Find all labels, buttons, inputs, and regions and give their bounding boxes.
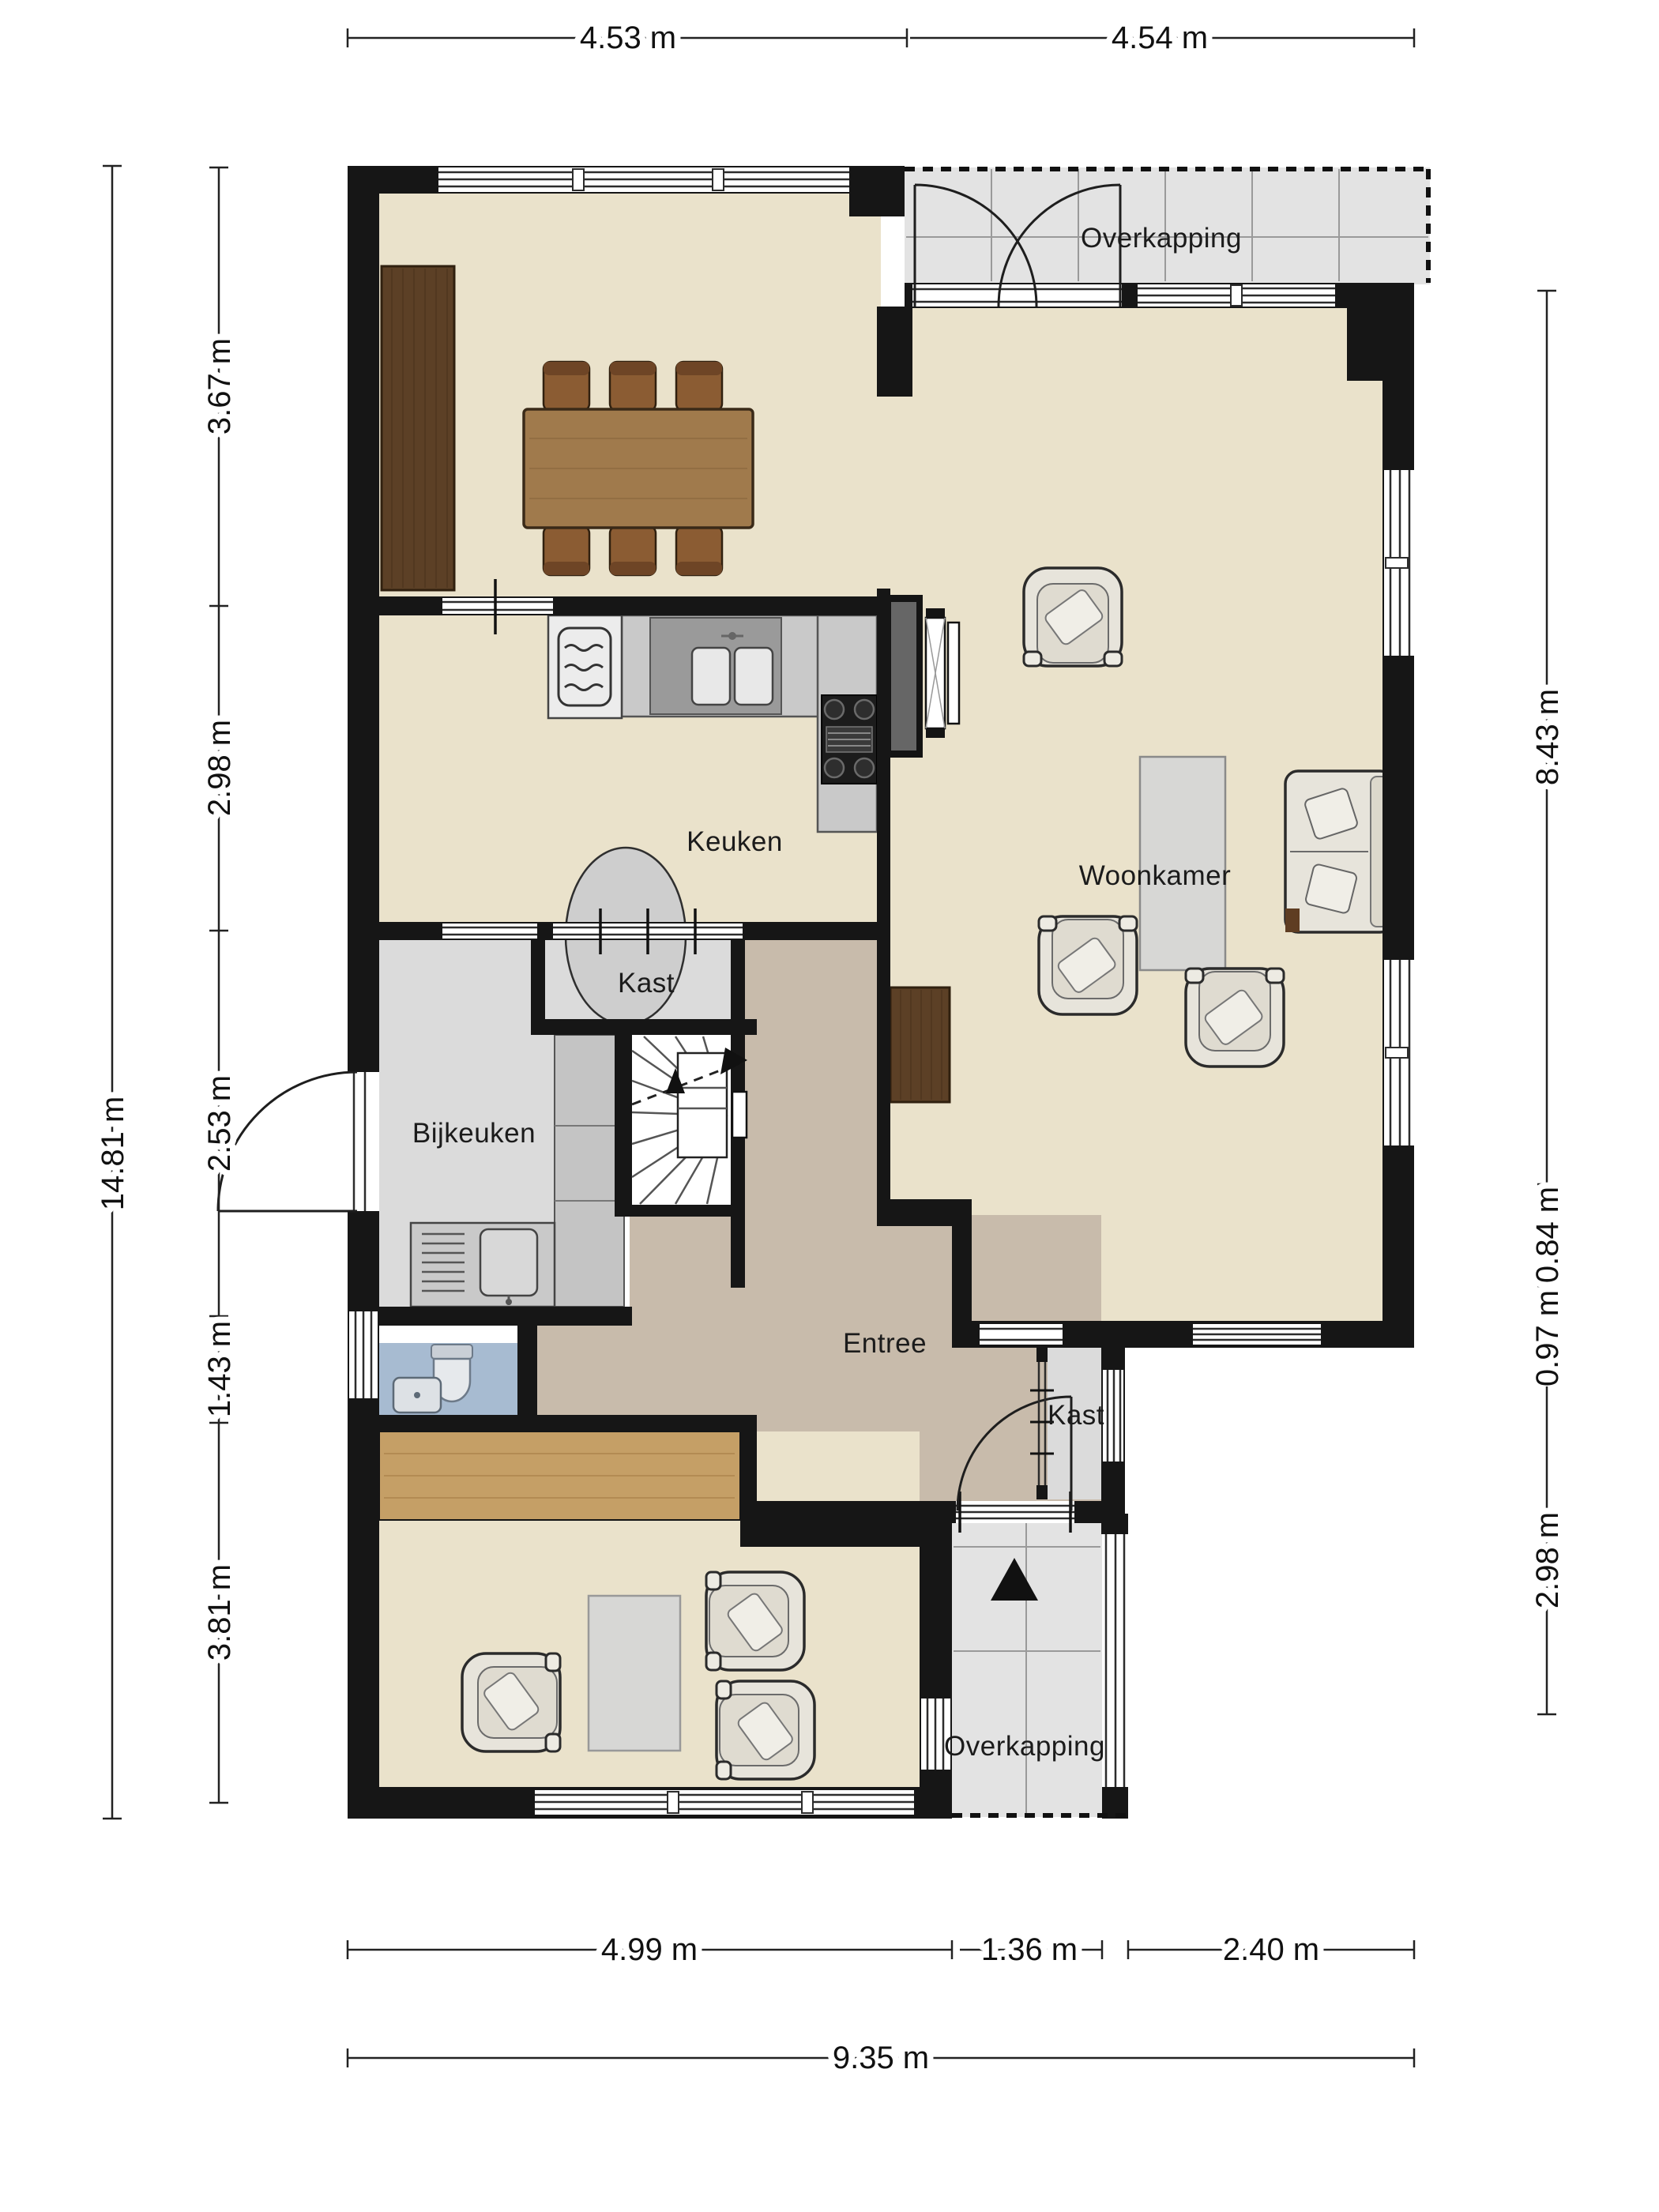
floor-plan: 4.53 m 4.54 m 14.81 m 3.67 m 2.98 m 2.53… (0, 0, 1659, 2212)
window-living-right-2 (1384, 960, 1431, 1145)
armchair-living-3 (1186, 969, 1284, 1066)
sitting-table (589, 1596, 680, 1751)
armchair-living-1 (1024, 568, 1122, 666)
window-entree-right (1103, 1370, 1123, 1461)
window-sitting-bottom (535, 1790, 914, 1815)
window-living-right-1 (1384, 470, 1431, 656)
armchair-sitting-2 (706, 1572, 804, 1670)
label-entree: Entree (843, 1328, 927, 1359)
dim-label: 1.43 m (202, 1321, 237, 1417)
dim-label: 3.81 m (202, 1564, 237, 1661)
dim-label: 14.81 m (96, 1097, 130, 1211)
window-living-bottom-2 (1193, 1324, 1321, 1345)
sofa (1285, 771, 1393, 932)
dim-bottom-segments: 4.99 m 1.36 m 2.40 m (348, 1932, 1414, 1967)
label-kast-entree: Kast (1048, 1400, 1104, 1431)
dim-label: 2.98 m (1530, 1512, 1565, 1608)
armchair-sitting-1 (462, 1653, 560, 1751)
label-keuken: Keuken (687, 826, 783, 857)
side-door (218, 1072, 379, 1211)
dim-label: 1.36 m (981, 1932, 1078, 1967)
stove (822, 695, 877, 784)
dim-label: 2.98 m (202, 720, 237, 816)
label-bijkeuken: Bijkeuken (412, 1118, 536, 1149)
dim-label: 8.43 m (1530, 689, 1565, 785)
dim-label: 3.67 m (202, 338, 237, 434)
dim-right-segments: 8.43 m 0.84 m 0.97 m 2.98 m (1530, 291, 1565, 1714)
armchair-sitting-3 (717, 1681, 814, 1779)
dim-left-total: 14.81 m (96, 166, 130, 1819)
sitting-sideboard (379, 1431, 740, 1520)
toilet-cistern (431, 1345, 472, 1359)
overkapping-glass-side (1102, 1534, 1128, 1787)
window-living-bottom-1 (980, 1324, 1063, 1345)
sofa-foot (1285, 908, 1300, 932)
toilet-niche (379, 1326, 517, 1345)
dim-bottom-total: 9.35 m (348, 2041, 1414, 2075)
stairs-rail-opening (732, 1092, 747, 1138)
label-overkapping-top: Overkapping (1081, 223, 1242, 254)
sink-left (692, 648, 730, 705)
dim-label: 2.53 m (202, 1075, 237, 1172)
dining-table-group (524, 362, 753, 575)
window-dining-top (438, 167, 849, 192)
window-left-toilet (349, 1311, 378, 1398)
dim-label: 9.35 m (833, 2041, 929, 2075)
armchair-living-2 (1039, 916, 1137, 1014)
sink-right (735, 648, 773, 705)
dim-label: 4.99 m (601, 1932, 698, 1967)
label-overkapping-bottom: Overkapping (944, 1731, 1105, 1762)
sideboard (382, 266, 454, 590)
dim-left-segments: 3.67 m 2.98 m 2.53 m 1.43 m 3.81 m (202, 167, 237, 1803)
label-woonkamer: Woonkamer (1079, 860, 1232, 891)
hall-corridor-floor (745, 940, 877, 1224)
hall-cabinet (890, 987, 950, 1102)
floor-plan-page: 4.53 m 4.54 m 14.81 m 3.67 m 2.98 m 2.53… (0, 0, 1659, 2212)
dim-label: 4.54 m (1112, 21, 1208, 55)
window-living-top (1138, 284, 1335, 307)
dim-label: 0.84 m (1530, 1187, 1565, 1283)
label-kast-top: Kast (618, 968, 675, 999)
bijkeuken-cupboard (555, 1035, 624, 1307)
laundry-sink (480, 1229, 537, 1296)
dim-label: 0.97 m (1530, 1290, 1565, 1386)
dim-label: 4.53 m (580, 21, 676, 55)
dim-top: 4.53 m 4.54 m (348, 21, 1414, 55)
laundry-counter (411, 1223, 555, 1307)
window-kast-wall (442, 924, 537, 939)
dim-label: 2.40 m (1223, 1932, 1319, 1967)
hall-mid-floor (630, 1215, 1101, 1330)
